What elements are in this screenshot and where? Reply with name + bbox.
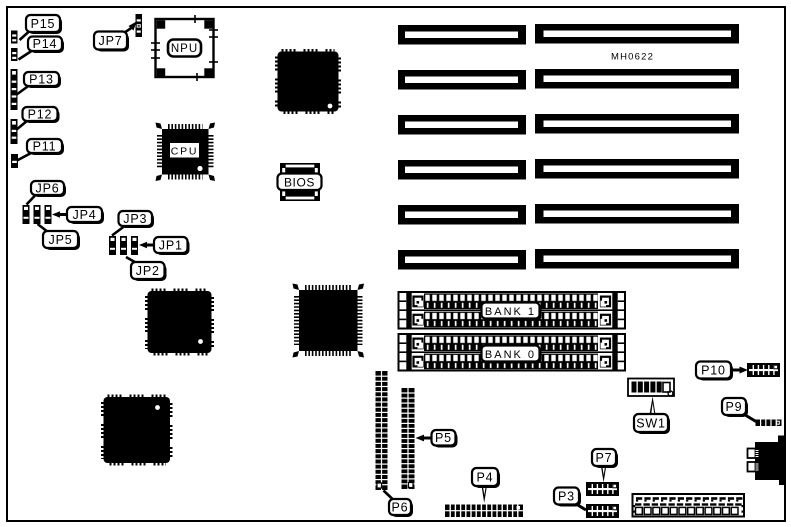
svg-text:SW1: SW1 [636, 416, 666, 430]
svg-text:CPU: CPU [171, 145, 199, 157]
svg-text:JP6: JP6 [36, 181, 60, 195]
svg-text:JP3: JP3 [123, 212, 147, 226]
svg-text:P10: P10 [701, 363, 726, 377]
svg-text:P15: P15 [31, 17, 56, 31]
svg-text:P11: P11 [33, 139, 57, 153]
svg-text:BIOS: BIOS [284, 175, 315, 189]
svg-text:P13: P13 [29, 72, 54, 86]
svg-text:JP5: JP5 [49, 233, 73, 247]
svg-text:P5: P5 [435, 431, 452, 445]
svg-text:P9: P9 [726, 400, 743, 414]
svg-text:JP2: JP2 [136, 264, 160, 278]
svg-text:JP1: JP1 [159, 238, 183, 252]
svg-text:BANK 0: BANK 0 [485, 349, 536, 361]
svg-text:P4: P4 [477, 470, 494, 484]
svg-text:P12: P12 [28, 107, 53, 121]
svg-text:JP4: JP4 [73, 208, 97, 222]
svg-text:MH0622: MH0622 [611, 52, 654, 63]
svg-text:P6: P6 [392, 500, 409, 514]
svg-text:P3: P3 [558, 489, 575, 503]
svg-text:P7: P7 [596, 451, 613, 465]
svg-text:P14: P14 [33, 37, 58, 51]
svg-text:BANK 1: BANK 1 [485, 306, 536, 318]
svg-text:JP7: JP7 [99, 34, 123, 48]
svg-text:NPU: NPU [171, 43, 198, 55]
